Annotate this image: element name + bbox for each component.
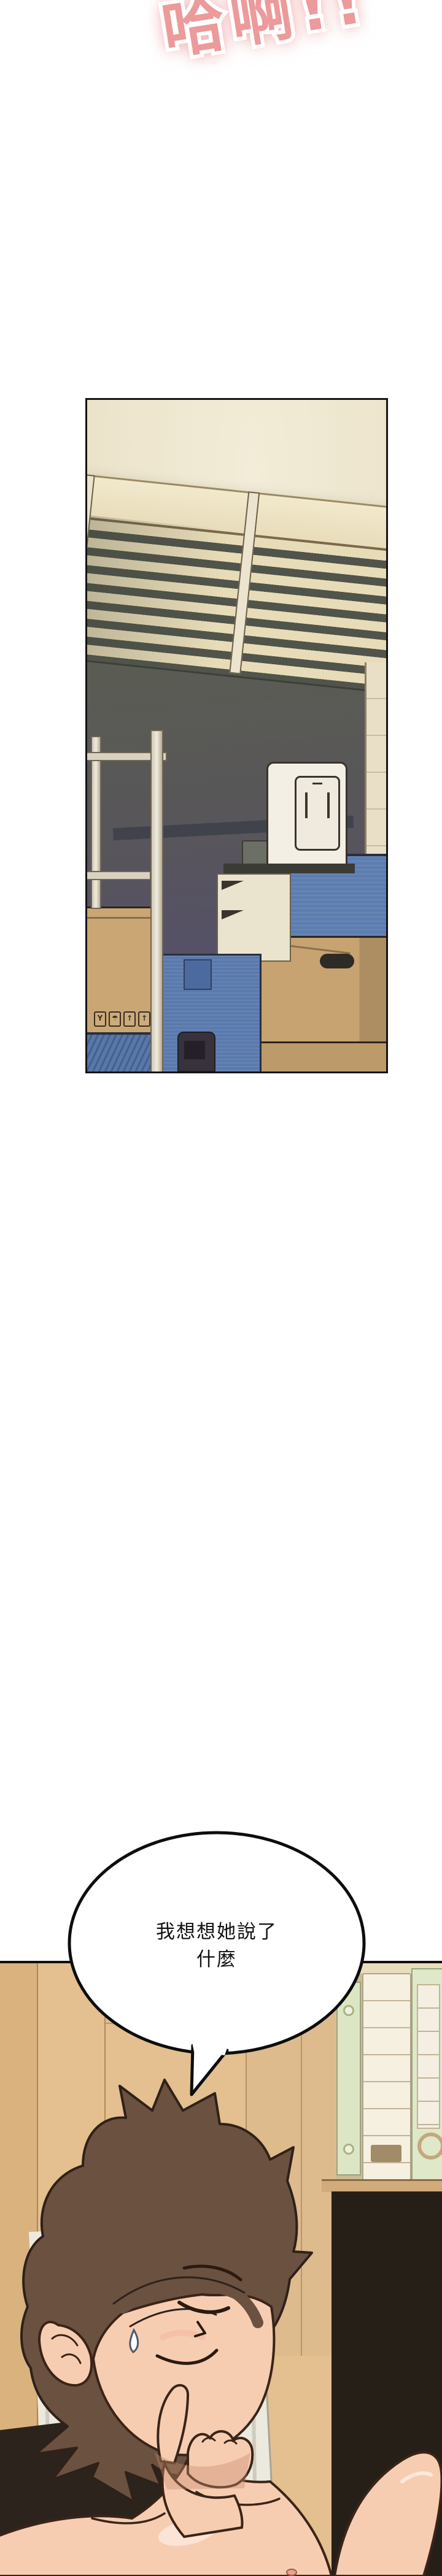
speech-line-2: 什麼 [68, 1946, 365, 1974]
crate-handle [177, 1032, 215, 1072]
panel-room: Y ☂ ↑ ↑ [85, 398, 388, 1073]
shelf-pole [91, 736, 101, 909]
dispenser-slot [327, 792, 330, 818]
wine-glass-mark-icon: Y [94, 1011, 106, 1027]
umbrella-mark-icon: ☂ [109, 1011, 121, 1027]
dispenser-panel [295, 776, 340, 851]
speech-line-1: 我想想她說了 [68, 1919, 365, 1946]
arrow-up-mark-icon: ↑ [138, 1011, 150, 1027]
crate-label-patch [184, 959, 212, 990]
shelf-rail [85, 871, 151, 880]
box-handle-hole [320, 954, 354, 968]
fragile-marks-row: Y ☂ ↑ ↑ [94, 1011, 150, 1027]
sfx-text-fill: 哈啊!! [155, 0, 373, 71]
cardboard-box-left: Y ☂ ↑ ↑ [85, 907, 157, 1037]
nipple [287, 2569, 297, 2575]
window-blinds [85, 472, 388, 697]
shelf-pole [150, 730, 163, 1073]
cardboard-box-bottom [257, 1041, 388, 1073]
sfx-text: 哈啊!! 哈啊!! [155, 0, 387, 73]
dispenser-slot [305, 792, 308, 818]
box-lid-line [87, 917, 155, 919]
drawer-cabinet [217, 873, 291, 962]
drawer-handle-icon [222, 910, 244, 919]
counter-edge [223, 864, 355, 873]
arrow-up-mark-icon: ↑ [123, 1011, 136, 1027]
plastic-crate-center [160, 954, 262, 1073]
comic-page: 哈啊!! 哈啊!! [0, 0, 442, 2576]
character-arm [335, 2452, 441, 2576]
plastic-crate-left [85, 1032, 153, 1073]
speech-bubble-text: 我想想她說了 什麼 [68, 1919, 365, 1974]
drawer-handle-icon [222, 881, 244, 890]
dispenser-vent [312, 783, 322, 784]
water-dispenser [266, 762, 347, 868]
